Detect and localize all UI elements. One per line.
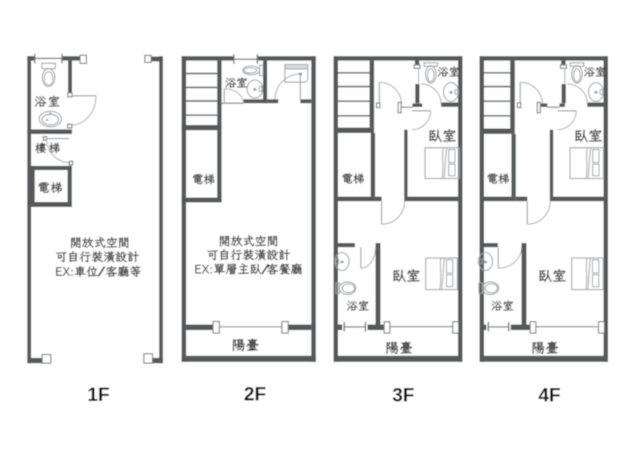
svg-text:4F: 4F	[538, 386, 560, 407]
svg-text:1F: 1F	[87, 385, 109, 406]
svg-text:2F: 2F	[244, 385, 266, 406]
svg-text:3F: 3F	[392, 386, 414, 407]
